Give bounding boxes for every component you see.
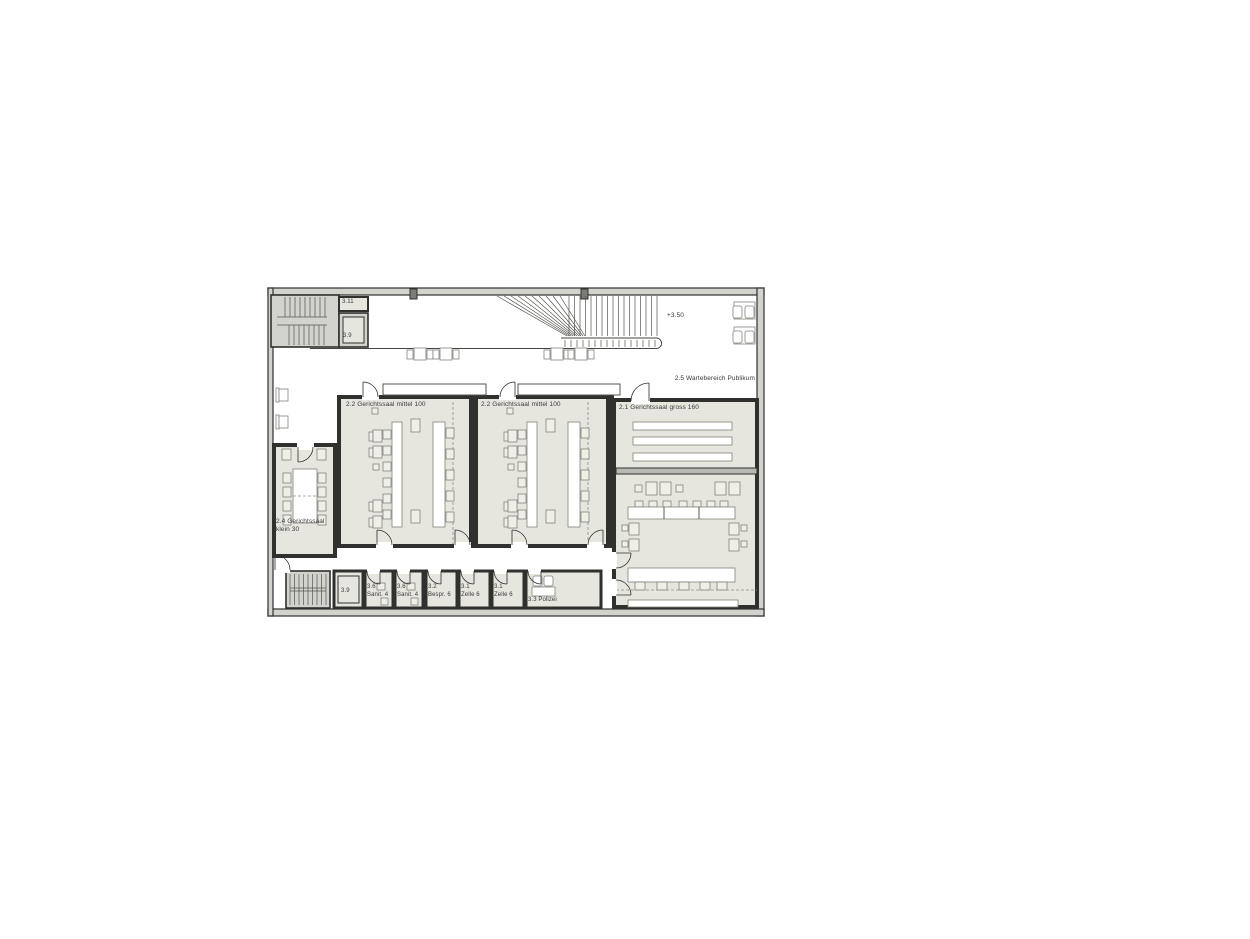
room-label-mittel-a: 2.2 Gerichtssaal mittel 100	[346, 401, 426, 408]
room-label-3-11: 3.11	[342, 299, 354, 306]
wall-post	[581, 289, 588, 299]
floorplan-drawing	[267, 287, 765, 617]
room-label-3-9-lower: 3.9	[341, 588, 350, 595]
floorplan-page: 3.11 3.9 +3.50 2.5 Wartebereich Publikum…	[0, 0, 1250, 939]
room-label-zelle-a-line1: 3.1	[461, 584, 470, 591]
room-label-mittel-b: 2.2 Gerichtssaal mittel 100	[481, 401, 561, 408]
level-annotation: +3.50	[667, 312, 684, 319]
stair-lower-left	[286, 571, 330, 608]
room-label-polizei: 3.3 Polizei	[528, 597, 557, 604]
room-label-bespr-line1: 3.2	[428, 584, 437, 591]
room-label-sanit-b-line1: 3.6	[397, 584, 406, 591]
room-label-3-9-upper: 3.9	[343, 333, 352, 340]
floorplan: 3.11 3.9 +3.50 2.5 Wartebereich Publikum…	[267, 287, 765, 617]
room-label-sanit-a-line2: Sanit. 4	[367, 592, 388, 599]
room-label-sanit-a-line1: 3.6	[367, 584, 376, 591]
room-label-gross: 2.1 Gerichtssaal gross 160	[619, 404, 699, 411]
stair-upper-left	[271, 295, 339, 347]
room-label-bespr-line2: Bespr. 6	[428, 592, 451, 599]
room-3-9-upper	[339, 313, 368, 347]
room-label-klein-line2: klein 30	[276, 526, 299, 533]
room-label-waiting-area: 2.5 Wartebereich Publikum	[637, 375, 755, 382]
room-label-sanit-b-line2: Sanit. 4	[397, 592, 418, 599]
room-label-zelle-b-line2: Zelle 6	[494, 592, 513, 599]
room-label-zelle-a-line2: Zelle 6	[461, 592, 480, 599]
room-label-zelle-b-line1: 3.1	[494, 584, 503, 591]
wall-post	[410, 289, 417, 299]
room-label-klein-line1: 2.4 Gerichtssaal	[276, 518, 325, 525]
